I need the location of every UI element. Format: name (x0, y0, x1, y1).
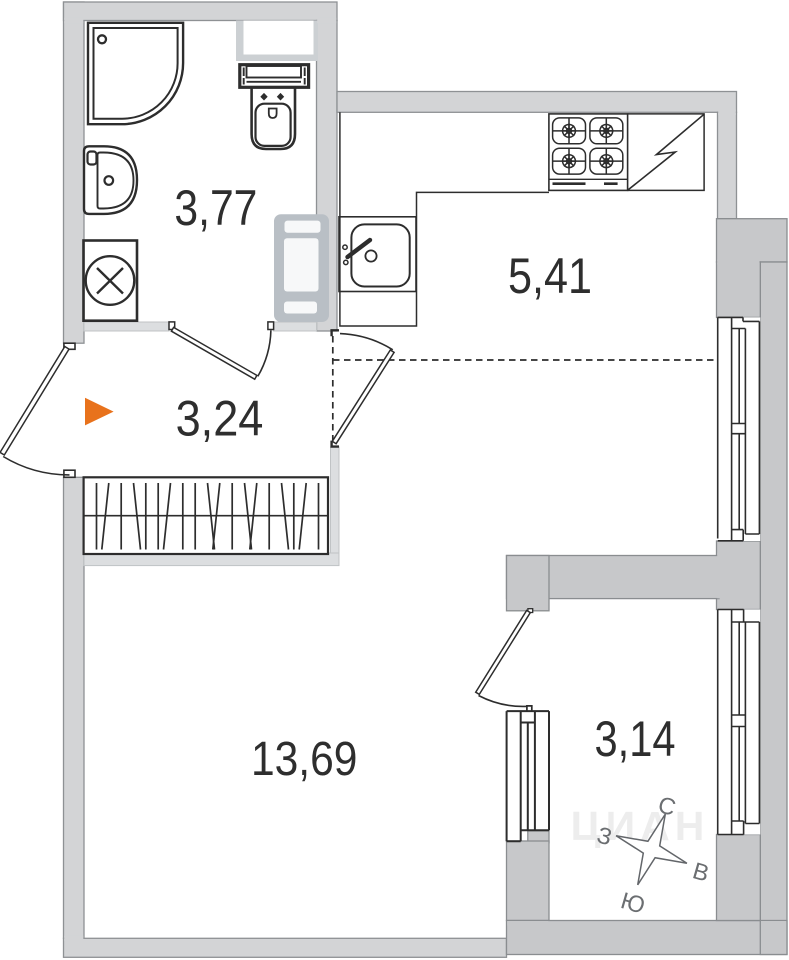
svg-text:5,41: 5,41 (508, 248, 592, 304)
svg-text:3,14: 3,14 (595, 711, 676, 767)
svg-text:3,24: 3,24 (176, 391, 264, 447)
svg-text:13,69: 13,69 (251, 733, 358, 786)
svg-text:3,77: 3,77 (174, 180, 257, 236)
